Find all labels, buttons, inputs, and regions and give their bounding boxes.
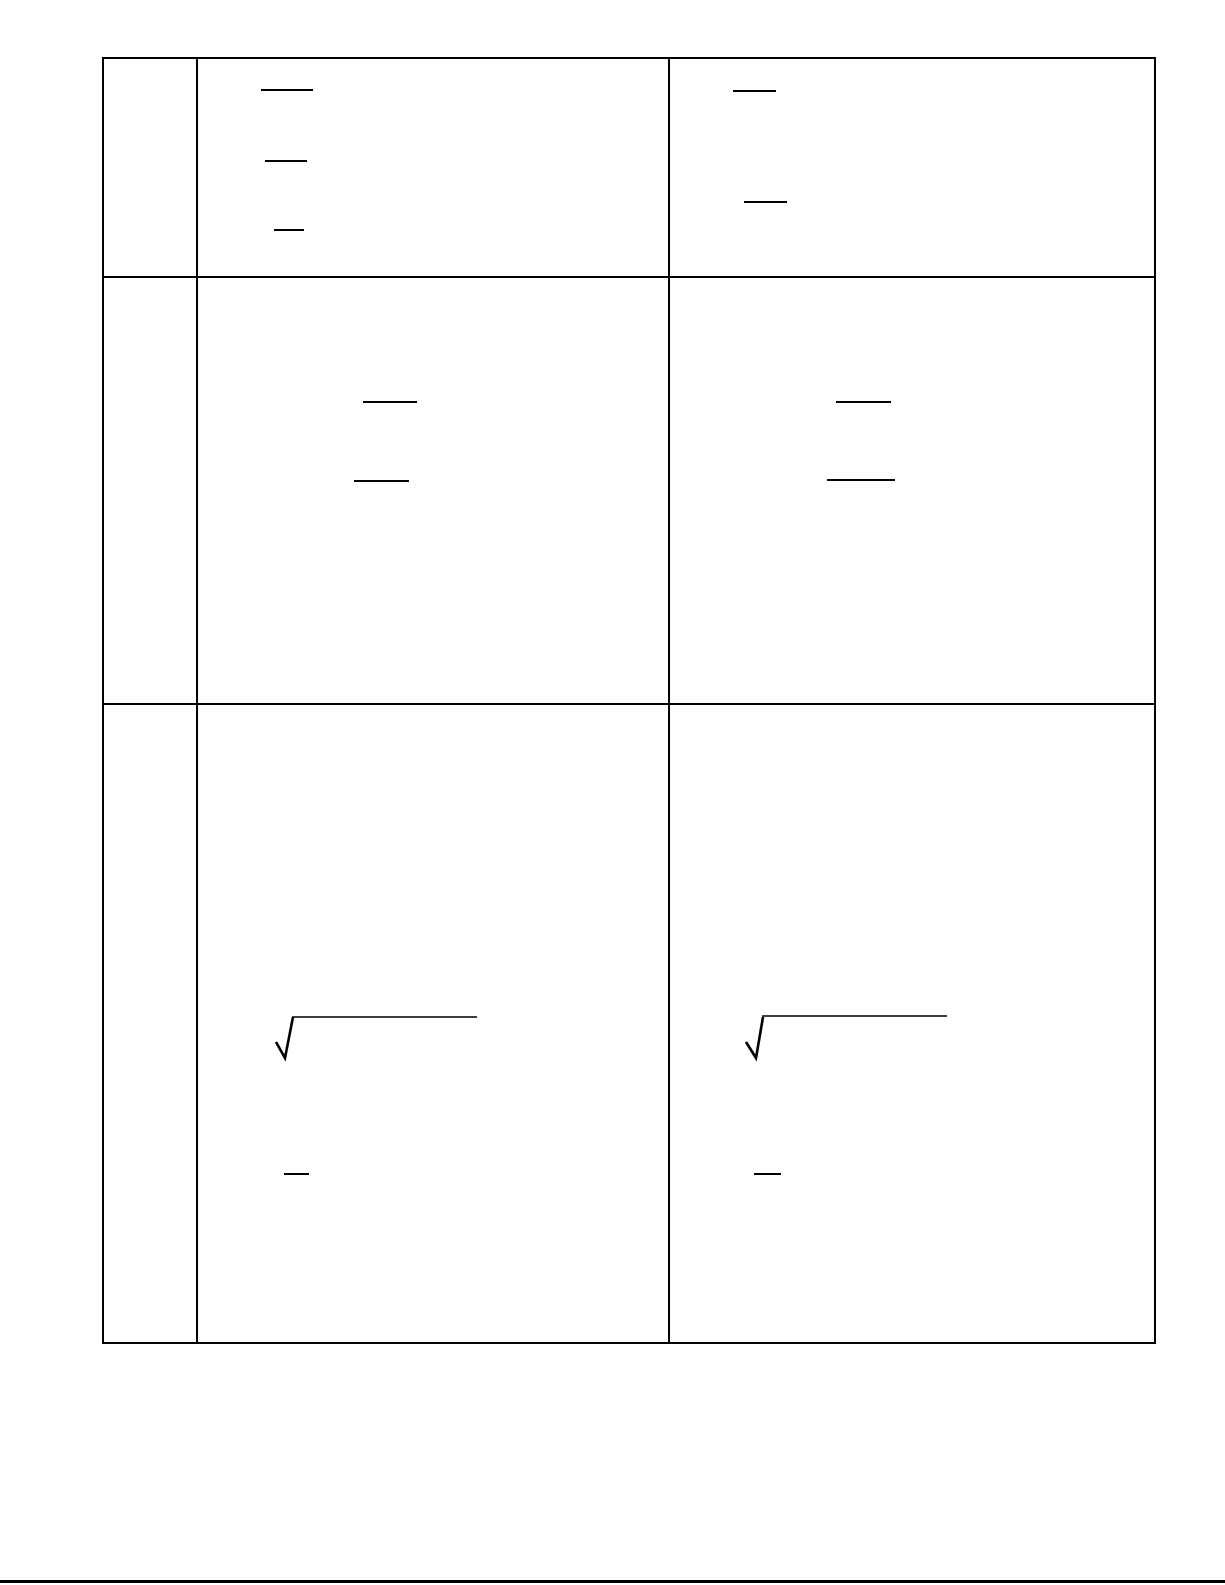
footer-rule <box>0 1580 1225 1583</box>
table-row-divider-2 <box>103 703 1155 705</box>
table-row-divider-1 <box>103 276 1155 278</box>
equation-table <box>102 57 1156 1344</box>
table-column-divider-1 <box>196 58 198 1343</box>
document-page <box>0 0 1225 1585</box>
table-column-divider-2 <box>668 58 670 1343</box>
